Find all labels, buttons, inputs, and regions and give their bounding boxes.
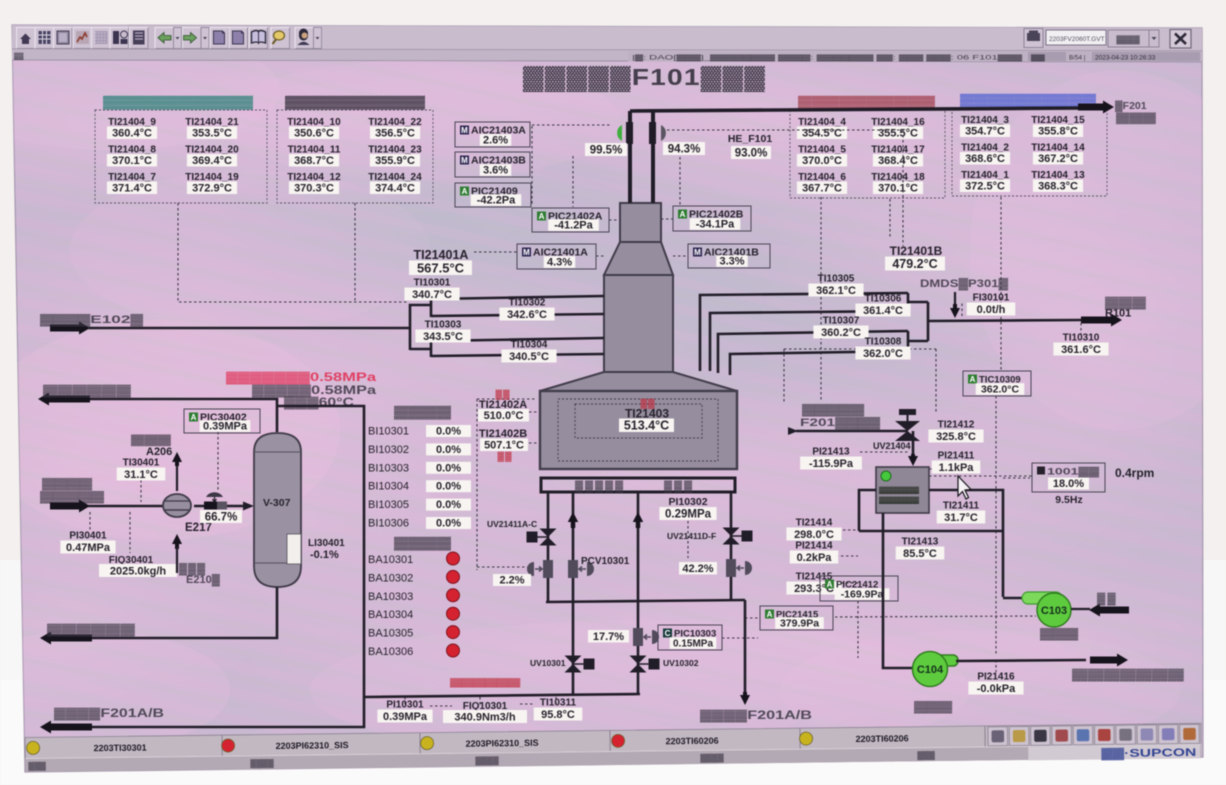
svg-text:▓▓▓▓F201A/B: ▓▓▓▓F201A/B: [54, 707, 164, 721]
svg-text:PI21413: PI21413: [812, 447, 850, 458]
svg-text:TI21404_10: TI21404_10: [287, 117, 341, 128]
svg-text:340.7°C: 340.7°C: [412, 289, 452, 301]
svg-text:▓▓▓▓: ▓▓▓▓: [394, 536, 452, 551]
svg-text:0.0%: 0.0%: [436, 499, 461, 511]
svg-text:▓▓·SUPCON: ▓▓·SUPCON: [1101, 746, 1196, 761]
svg-text:0.0%: 0.0%: [436, 518, 461, 530]
svg-text:BA10306: BA10306: [368, 646, 413, 658]
svg-text:TI10307: TI10307: [823, 316, 860, 327]
svg-text:372.9°C: 372.9°C: [192, 183, 232, 195]
svg-text:9.5Hz: 9.5Hz: [1055, 494, 1082, 506]
svg-text:0.29MPa: 0.29MPa: [665, 509, 712, 521]
svg-text:R101: R101: [1105, 308, 1131, 320]
svg-text:356.5°C: 356.5°C: [375, 128, 415, 140]
svg-text:325.8°C: 325.8°C: [936, 431, 976, 443]
svg-text:0.0%: 0.0%: [436, 426, 461, 438]
svg-text:99.5%: 99.5%: [590, 145, 623, 157]
svg-text:2203TI30301: 2203TI30301: [94, 743, 147, 754]
svg-text:M: M: [461, 126, 468, 135]
svg-text:▓▓▓▓▓▓▓0.58MPa: ▓▓▓▓▓▓▓0.58MPa: [226, 371, 377, 385]
svg-text:343.5°C: 343.5°C: [423, 331, 463, 343]
svg-text:355.8°C: 355.8°C: [1038, 126, 1078, 138]
svg-text:UV10302: UV10302: [663, 658, 699, 668]
svg-text:▓▓▓▓F201A/B: ▓▓▓▓F201A/B: [700, 709, 812, 723]
svg-text:M: M: [461, 156, 468, 165]
svg-text:0.0%: 0.0%: [436, 444, 461, 456]
svg-text:368.3°C: 368.3°C: [1038, 181, 1078, 193]
svg-text:▓▓▓▓▓0.58MPa: ▓▓▓▓▓0.58MPa: [252, 384, 377, 398]
svg-text:▓▓▓: ▓▓▓: [917, 751, 935, 761]
svg-text:361.6°C: 361.6°C: [1061, 344, 1101, 356]
svg-text:TI21404_6: TI21404_6: [798, 172, 846, 183]
svg-text:A: A: [462, 187, 468, 196]
svg-text:TI21404_12: TI21404_12: [287, 172, 341, 183]
svg-text:BI10301: BI10301: [368, 426, 409, 438]
svg-text:E210▓: E210▓: [186, 573, 221, 587]
svg-text:0.2kPa: 0.2kPa: [797, 552, 833, 564]
svg-text:342.6°C: 342.6°C: [507, 309, 547, 321]
svg-text:TI10311: TI10311: [540, 698, 577, 709]
svg-text:TI21414: TI21414: [796, 518, 833, 529]
svg-text:367.7°C: 367.7°C: [802, 183, 842, 195]
svg-text:TI21413: TI21413: [902, 537, 939, 548]
svg-text:2203FV2060T.GVT: 2203FV2060T.GVT: [1049, 36, 1105, 43]
svg-text:FI30101: FI30101: [973, 293, 1010, 304]
svg-text:C104: C104: [917, 664, 944, 676]
svg-text:▓▓▓▓▓▓▓: ▓▓▓▓▓▓▓: [1072, 668, 1185, 682]
svg-text:0.47MPa: 0.47MPa: [66, 542, 111, 554]
svg-text:▓▓▓▓▓F101▓▓▓: ▓▓▓▓▓F101▓▓▓: [523, 64, 766, 92]
svg-text:340.5°C: 340.5°C: [509, 351, 549, 363]
svg-text:371.4°C: 371.4°C: [112, 183, 152, 195]
svg-text:95.8°C: 95.8°C: [541, 709, 575, 721]
svg-text:HE_F101: HE_F101: [728, 133, 773, 145]
svg-text:▓▓▓▓▓▓▓▓▓▓: ▓▓▓▓▓▓▓▓▓▓: [103, 95, 254, 110]
svg-text:|▓: DAO[▓▓▓]_▓▓▓▓▓▓▓▓ ▓▓▓▓: ▓▓: |▓: DAO[▓▓▓]_▓▓▓▓▓▓▓▓ ▓▓▓▓: ▓▓▓▓▓▓▓ ▓▓: …: [632, 54, 1023, 62]
svg-text:TI10302: TI10302: [509, 298, 546, 309]
svg-text:TI30401: TI30401: [123, 458, 160, 469]
svg-text:379.9Pa: 379.9Pa: [780, 617, 819, 629]
svg-text:PI21411: PI21411: [938, 451, 975, 462]
svg-text:1.1kPa: 1.1kPa: [939, 462, 975, 474]
svg-text:368.4°C: 368.4°C: [878, 155, 918, 167]
svg-text:479.2°C: 479.2°C: [892, 257, 937, 271]
svg-text:66.7%: 66.7%: [205, 512, 238, 524]
svg-text:4.3%: 4.3%: [547, 256, 572, 268]
svg-text:2203PI62310_SIS: 2203PI62310_SIS: [276, 740, 349, 751]
svg-text:2203PI62310_SIS: 2203PI62310_SIS: [466, 738, 539, 749]
svg-text:-0.0kPa: -0.0kPa: [977, 683, 1016, 695]
svg-text:TI10308: TI10308: [865, 337, 902, 348]
svg-text:▓▓▓▓▓▓: ▓▓▓▓▓▓: [450, 677, 521, 688]
svg-text:0.39MPa: 0.39MPa: [383, 711, 428, 723]
svg-text:▓▓▓▓▓: ▓▓▓▓▓: [802, 403, 865, 417]
svg-text:▓▓: ▓▓: [497, 451, 512, 462]
svg-text:PI21416: PI21416: [977, 672, 1015, 683]
svg-text:17.7%: 17.7%: [593, 631, 624, 643]
svg-text:BA10302: BA10302: [368, 572, 413, 584]
svg-text:TI21404_4: TI21404_4: [798, 117, 846, 128]
svg-text:UV21404: UV21404: [873, 441, 911, 451]
svg-text:-34.1Pa: -34.1Pa: [696, 218, 735, 230]
svg-text:355.5°C: 355.5°C: [878, 128, 918, 140]
svg-text:TI21404_22: TI21404_22: [368, 117, 422, 128]
svg-text:TI21404_8: TI21404_8: [108, 145, 156, 156]
svg-text:PCV10301: PCV10301: [581, 556, 630, 567]
svg-text:-41.2Pa: -41.2Pa: [554, 219, 593, 231]
svg-text:370.1°C: 370.1°C: [112, 155, 152, 167]
svg-text:354.7°C: 354.7°C: [965, 126, 1005, 138]
svg-text:3.3%: 3.3%: [719, 255, 744, 267]
svg-text:UV10301: UV10301: [530, 658, 566, 668]
svg-text:BA10305: BA10305: [368, 628, 413, 640]
svg-text:C103: C103: [1041, 605, 1067, 617]
svg-text:TI21404_16: TI21404_16: [871, 117, 925, 128]
svg-text:PI10301: PI10301: [386, 700, 424, 711]
svg-text:TI21401B: TI21401B: [890, 244, 943, 258]
svg-text:2.2%: 2.2%: [499, 575, 524, 587]
svg-text:94.3%: 94.3%: [668, 144, 701, 156]
svg-text:369.4°C: 369.4°C: [192, 155, 232, 167]
svg-text:▓▓▓: ▓▓▓: [1116, 112, 1157, 124]
svg-text:TI10303: TI10303: [425, 320, 462, 331]
svg-text:3.6%: 3.6%: [483, 164, 508, 176]
svg-text:42.2%: 42.2%: [682, 563, 713, 575]
svg-text:567.5°C: 567.5°C: [417, 261, 465, 276]
svg-text:TI21404_21: TI21404_21: [185, 117, 239, 128]
svg-text:▓F201: ▓F201: [1115, 100, 1147, 112]
svg-text:▓▓: ▓▓: [1097, 592, 1118, 606]
svg-text:TI21404_23: TI21404_23: [368, 145, 422, 156]
svg-text:TI21404_3: TI21404_3: [961, 115, 1009, 126]
svg-text:BI10306: BI10306: [368, 518, 409, 530]
svg-text:LI30401: LI30401: [308, 538, 345, 549]
svg-text:370.3°C: 370.3°C: [294, 183, 334, 195]
svg-text:TI10306: TI10306: [865, 294, 902, 305]
svg-text:360.4°C: 360.4°C: [112, 128, 152, 140]
svg-text:362.0°C: 362.0°C: [981, 383, 1019, 395]
svg-text:TI21404_7: TI21404_7: [108, 172, 156, 183]
svg-text:▓▓▓▓: ▓▓▓▓: [394, 405, 452, 420]
svg-text:▓▓▓▓: ▓▓▓▓: [700, 753, 724, 763]
svg-text:M: M: [523, 248, 530, 257]
svg-text:TI21411: TI21411: [943, 501, 980, 512]
svg-text:353.5°C: 353.5°C: [192, 128, 232, 140]
svg-text:-115.9Pa: -115.9Pa: [809, 458, 854, 470]
svg-text:2203TI60206: 2203TI60206: [856, 733, 909, 744]
svg-text:BI10304: BI10304: [368, 481, 409, 493]
svg-text:B/54 |: B/54 |: [1069, 55, 1086, 62]
svg-text:UV21411A-C: UV21411A-C: [487, 519, 537, 529]
svg-text:2.6%: 2.6%: [483, 134, 508, 146]
svg-text:PI21414: PI21414: [795, 541, 833, 552]
svg-text:▓▓▓▓▓: ▓▓▓▓▓: [40, 490, 106, 504]
svg-text:TI21404_5: TI21404_5: [798, 145, 846, 156]
svg-text:BI10305: BI10305: [368, 499, 409, 511]
svg-text:E217: E217: [185, 522, 212, 534]
svg-text:-42.2Pa: -42.2Pa: [477, 194, 516, 206]
svg-text:368.7°C: 368.7°C: [294, 155, 334, 167]
svg-text:350.6°C: 350.6°C: [294, 128, 334, 140]
svg-text:A: A: [680, 210, 686, 219]
svg-text:TI21404_9: TI21404_9: [108, 117, 156, 128]
svg-text:370.0°C: 370.0°C: [802, 155, 842, 167]
svg-text:BA10303: BA10303: [368, 591, 413, 603]
svg-text:362.1°C: 362.1°C: [816, 285, 856, 297]
svg-text:▓▓▓▓▓▓: ▓▓▓▓▓▓: [47, 623, 136, 637]
svg-text:TI10301: TI10301: [414, 278, 451, 289]
svg-text:TI21404_18: TI21404_18: [871, 172, 925, 183]
svg-text:F201▓▓▓▓: F201▓▓▓▓: [800, 416, 881, 430]
svg-text:360.2°C: 360.2°C: [821, 327, 861, 339]
svg-text:2203TI60206: 2203TI60206: [666, 736, 719, 747]
svg-text:A: A: [970, 375, 976, 384]
svg-text:TI21404_11: TI21404_11: [288, 145, 341, 156]
svg-text:TI21404_19: TI21404_19: [185, 172, 239, 183]
svg-text:▓▓▓: ▓▓▓: [28, 761, 46, 771]
svg-text:31.1°C: 31.1°C: [124, 469, 158, 481]
svg-text:A: A: [827, 580, 833, 589]
svg-text:TI21404_17: TI21404_17: [871, 145, 925, 156]
svg-text:510.0°C: 510.0°C: [484, 410, 524, 422]
svg-text:▓▓▓: ▓▓▓: [1040, 627, 1080, 641]
svg-text:362.0°C: 362.0°C: [863, 348, 903, 360]
svg-text:TI21404_14: TI21404_14: [1031, 143, 1085, 154]
svg-text:▓▓▓: ▓▓▓: [914, 700, 954, 714]
svg-text:TI21404_13: TI21404_13: [1031, 170, 1085, 181]
svg-text:31.7°C: 31.7°C: [944, 512, 978, 524]
svg-text:▓▓▓▓▓▓: ▓▓▓▓▓▓: [43, 384, 132, 398]
svg-text:374.4°C: 374.4°C: [375, 183, 415, 195]
svg-text:M: M: [694, 248, 701, 257]
svg-text:A: A: [767, 610, 773, 619]
svg-text:▓▓: ▓▓: [14, 52, 24, 60]
svg-text:A206: A206: [146, 446, 172, 458]
svg-text:513.4°C: 513.4°C: [624, 419, 669, 433]
svg-text:0.15MPa: 0.15MPa: [673, 638, 713, 649]
svg-text:▓▓▓▓▓: ▓▓▓▓▓: [879, 486, 919, 494]
svg-text:▓▓▓: ▓▓▓: [664, 480, 694, 494]
svg-text:TI21404_20: TI21404_20: [185, 145, 239, 156]
svg-text:BA10301: BA10301: [368, 554, 413, 566]
svg-text:BA10304: BA10304: [368, 609, 413, 621]
svg-text:93.0%: 93.0%: [735, 148, 768, 160]
svg-text:2023-04-23 10:26:33: 2023-04-23 10:26:33: [1095, 55, 1156, 62]
svg-text:0.0t/h: 0.0t/h: [977, 304, 1006, 316]
svg-text:TI21412: TI21412: [938, 420, 975, 431]
svg-text:TI10305: TI10305: [818, 274, 855, 285]
svg-text:TI21404_24: TI21404_24: [368, 172, 422, 183]
svg-text:▓▓▓▓: ▓▓▓▓: [475, 756, 499, 766]
svg-text:372.5°C: 372.5°C: [965, 181, 1005, 193]
svg-text:368.6°C: 368.6°C: [965, 153, 1005, 165]
svg-text:▓▓▓▓▓: ▓▓▓▓▓: [575, 480, 625, 494]
svg-text:2025.0kg/h: 2025.0kg/h: [110, 566, 167, 578]
svg-text:DMDS▓P301▓: DMDS▓P301▓: [920, 277, 1009, 291]
svg-text:1001▓▓: 1001▓▓: [1047, 467, 1099, 478]
svg-text:TI10310: TI10310: [1063, 333, 1100, 344]
svg-text:0.0%: 0.0%: [436, 481, 461, 493]
svg-text:BI10303: BI10303: [368, 462, 409, 474]
svg-text:▓▓▓: ▓▓▓: [131, 434, 172, 446]
svg-text:0.4rpm: 0.4rpm: [1115, 466, 1154, 480]
svg-text:85.5°C: 85.5°C: [903, 548, 937, 560]
svg-text:TI10304: TI10304: [511, 340, 548, 351]
svg-text:507.1°C: 507.1°C: [484, 440, 524, 452]
svg-text:▓▓▓▓E102▓: ▓▓▓▓E102▓: [40, 313, 145, 327]
svg-text:TI21404_2: TI21404_2: [961, 143, 1009, 154]
svg-text:▓▓▓▓▓▓▓▓▓▓: ▓▓▓▓▓▓▓▓▓▓: [960, 93, 1097, 108]
svg-text:UV21411D-F: UV21411D-F: [667, 531, 716, 541]
svg-text:361.4°C: 361.4°C: [863, 305, 903, 317]
svg-text:298.0°C: 298.0°C: [794, 529, 834, 541]
svg-text:-0.1%: -0.1%: [310, 549, 339, 561]
svg-text:▓▓▓▓: ▓▓▓▓: [250, 759, 274, 769]
svg-text:PI10302: PI10302: [668, 496, 707, 508]
svg-text:A: A: [191, 413, 197, 422]
svg-text:C: C: [665, 629, 671, 638]
svg-text:370.1°C: 370.1°C: [878, 183, 918, 195]
svg-text:0.0%: 0.0%: [436, 462, 461, 474]
svg-text:▓▓▓60°C: ▓▓▓60°C: [284, 396, 354, 410]
svg-text:-169.9Pa: -169.9Pa: [841, 588, 884, 600]
svg-text:18.0%: 18.0%: [1053, 478, 1084, 490]
svg-text:▓▓▓▓▓: ▓▓▓▓▓: [879, 496, 919, 504]
svg-text:355.9°C: 355.9°C: [375, 155, 415, 167]
svg-text:▓▓▓: ▓▓▓: [1031, 54, 1045, 62]
svg-text:▓▓▓▓: ▓▓▓▓: [1116, 35, 1139, 45]
svg-text:A: A: [539, 212, 545, 221]
svg-text:340.9Nm3/h: 340.9Nm3/h: [454, 712, 515, 724]
svg-text:V-307: V-307: [263, 497, 291, 509]
svg-text:0.39MPa: 0.39MPa: [203, 420, 248, 432]
svg-text:367.2°C: 367.2°C: [1038, 153, 1078, 165]
svg-text:354.5°C: 354.5°C: [802, 128, 842, 140]
svg-text:▓▓▓▓: ▓▓▓▓: [42, 477, 94, 491]
svg-text:BI10302: BI10302: [368, 444, 409, 456]
svg-text:TI21404_1: TI21404_1: [961, 170, 1009, 181]
svg-text:▓▓▓▓▓▓▓▓▓▓: ▓▓▓▓▓▓▓▓▓▓: [285, 95, 426, 110]
svg-text:TI21402B: TI21402B: [479, 428, 527, 440]
svg-text:TI21404_15: TI21404_15: [1031, 115, 1085, 126]
svg-text:PI30401: PI30401: [69, 531, 107, 542]
